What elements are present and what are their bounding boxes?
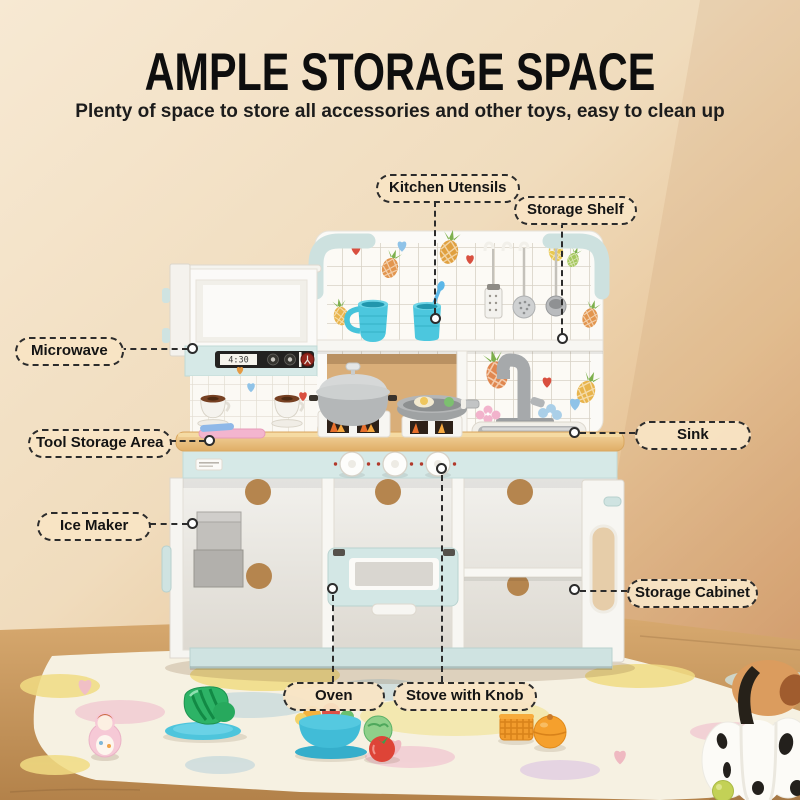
oven-handle [372,604,416,615]
callout-dot-ice-maker [187,518,198,529]
shelf-shadow [464,577,582,581]
callout-dot-storage-shelf [557,333,568,344]
backboard-hole [375,479,401,505]
toy-green-ball [713,781,734,800]
callout-line-microwave [120,348,188,350]
door-window [591,526,616,612]
kickboard [190,648,612,668]
callout-dot-tool-storage-area [204,435,215,446]
rug-blob [75,700,165,724]
callout-line-tool-storage-area [170,440,205,442]
callout-label-oven: Oven [283,682,385,711]
callout-line-storage-cabinet [580,590,627,592]
callout-line-kitchen-utensils [434,201,436,314]
callout-line-oven [332,595,334,682]
page-title: AMPLE STORAGE SPACE [88,42,712,103]
oven-door [328,548,458,615]
play-kitchen: 4:30 [162,228,624,670]
door-handle [162,546,171,592]
rug-blob [20,755,90,775]
oven-hinge [443,549,455,556]
callout-label-tool-storage-area: Tool Storage Area [28,429,172,458]
oven-window [355,562,433,586]
cabinet-door-right [582,480,624,662]
storage-cabinet [183,478,624,662]
oven-hinge [333,549,345,556]
callout-line-ice-maker [150,523,188,525]
toy-basket [499,714,534,740]
product-infographic: 4:30 [0,0,800,800]
callout-line-sink [580,432,635,434]
brand-sticker [196,459,222,470]
coffee-tile-backsplash [190,367,317,433]
door-handle [604,497,621,506]
cabinet-shelf [464,568,582,577]
callout-dot-kitchen-utensils [430,313,441,324]
callout-dot-storage-cabinet [569,584,580,595]
backboard-hole [507,479,533,505]
microwave-control-panel: 4:30 [185,346,317,376]
ice-maker [194,512,243,587]
callout-label-storage-cabinet: Storage Cabinet [627,579,758,608]
backboard-hole [245,479,271,505]
callout-dot-oven [327,583,338,594]
page-subtitle: Plenty of space to store all accessories… [0,101,800,123]
kickboard-shadow [190,666,612,670]
callout-label-kitchen-utensils: Kitchen Utensils [376,174,520,203]
callout-label-storage-shelf: Storage Shelf [514,196,637,225]
microwave-door-open [170,264,190,356]
callout-label-stove-with-knob: Stove with Knob [393,682,537,711]
callout-line-storage-shelf [561,222,563,334]
callout-dot-stove-with-knob [436,463,447,474]
callout-label-sink: Sink [635,421,751,450]
callout-dot-sink [569,427,580,438]
backboard-hole [246,563,272,589]
microwave-display: 4:30 [228,356,248,366]
callout-dot-microwave [187,343,198,354]
callout-line-stove-with-knob [441,475,443,682]
callout-label-microwave: Microwave [15,337,124,366]
callout-label-ice-maker: Ice Maker [37,512,151,541]
stove-front-panel [183,450,617,478]
rug-blob [520,760,600,780]
rug-blob [185,756,255,774]
